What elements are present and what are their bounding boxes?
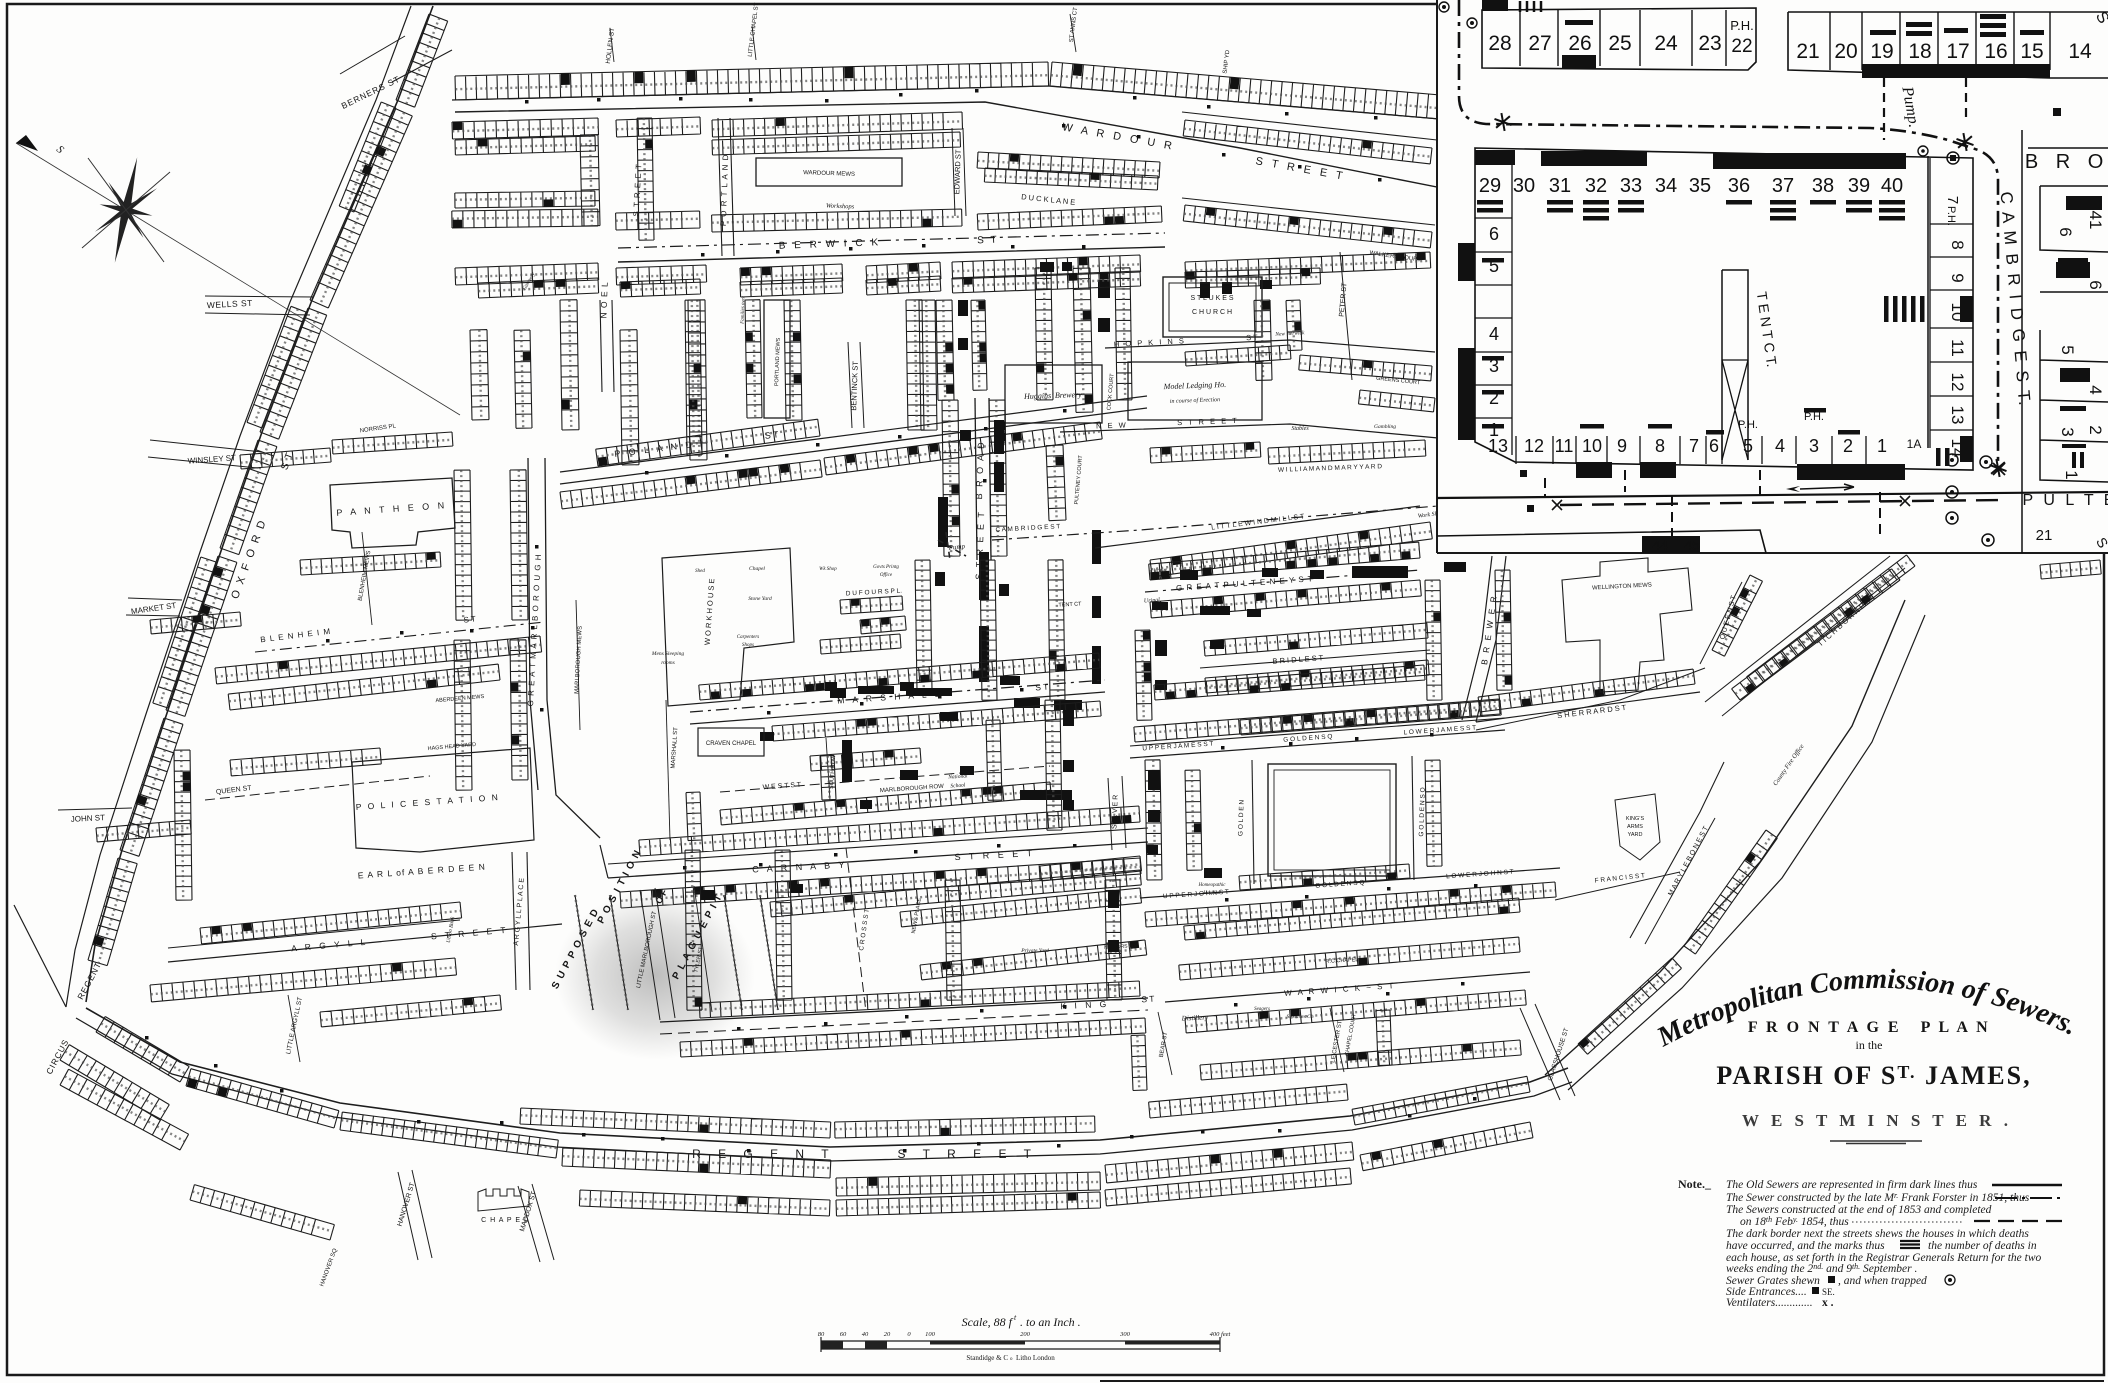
svg-text:x .: x . (1822, 1297, 1834, 1309)
svg-text:Stone Yard: Stone Yard (748, 596, 772, 602)
svg-text:JOHN ST: JOHN ST (71, 813, 106, 824)
svg-text:40: 40 (1881, 175, 1903, 197)
svg-text:23: 23 (1698, 32, 1721, 55)
svg-text:34: 34 (1655, 175, 1677, 197)
svg-text:CRAVEN CHAPEL: CRAVEN CHAPEL (706, 741, 757, 747)
svg-text:9: 9 (1948, 273, 1967, 282)
svg-text:Litho London: Litho London (1016, 1354, 1055, 1362)
svg-text:B R O A: B R O A (2025, 151, 2108, 173)
svg-text:in the: in the (1856, 1038, 1883, 1052)
svg-text:1: 1 (2062, 470, 2081, 479)
svg-text:18: 18 (1908, 40, 1931, 63)
svg-text:P.H.: P.H. (1804, 411, 1824, 423)
svg-text:13: 13 (1488, 436, 1508, 456)
svg-text:33: 33 (1620, 175, 1642, 197)
svg-text:17: 17 (1946, 40, 1969, 63)
svg-text:the number of deaths in: the number of deaths in (1928, 1240, 2037, 1252)
svg-text:400 feet: 400 feet (1210, 1331, 1231, 1338)
svg-text:41: 41 (2086, 211, 2105, 230)
svg-text:25: 25 (1608, 32, 1631, 55)
svg-text:F R O N T A G E P L A N: F R O N T A G E P L A N (1748, 1019, 1990, 1036)
svg-text:KING’S: KING’S (1626, 816, 1645, 822)
svg-text:The Old Sewers are represented: The Old Sewers are represented in firm d… (1726, 1179, 1978, 1191)
svg-text:39: 39 (1848, 175, 1870, 197)
svg-text:PARISH OF ST. JAMES,: PARISH OF ST. JAMES, (1716, 1061, 2031, 1090)
svg-text:24: 24 (1654, 32, 1678, 55)
svg-text:60: 60 (840, 1331, 847, 1338)
svg-text:6: 6 (1709, 436, 1719, 456)
svg-text:29: 29 (1479, 175, 1501, 197)
svg-text:YARD: YARD (1628, 832, 1643, 838)
svg-text:100: 100 (925, 1331, 936, 1338)
svg-text:N O E L: N O E L (598, 281, 609, 319)
svg-text:4: 4 (1489, 324, 1499, 344)
svg-text:C H U R C H: C H U R C H (1192, 309, 1232, 316)
svg-text:School: School (950, 782, 966, 789)
svg-text:S T: S T (1246, 333, 1258, 343)
svg-text:Urinal: Urinal (1153, 569, 1167, 574)
svg-text:Scale, 88 f: Scale, 88 f (962, 1315, 1014, 1329)
svg-text:27: 27 (1528, 32, 1551, 55)
svg-text:Chapel: Chapel (749, 566, 765, 572)
svg-text:36: 36 (1728, 175, 1750, 197)
svg-text:8: 8 (1655, 436, 1665, 456)
svg-text:G O L D E N: G O L D E N (1237, 799, 1245, 836)
svg-text:19: 19 (1870, 40, 1893, 63)
svg-text:40: 40 (862, 1331, 869, 1338)
svg-text:6: 6 (1489, 224, 1499, 244)
svg-text:11: 11 (1555, 436, 1574, 456)
svg-text:S I L V E R: S I L V E R (1111, 795, 1119, 830)
svg-text:S T: S T (1141, 994, 1155, 1005)
svg-text:20: 20 (884, 1331, 891, 1338)
svg-text:21: 21 (1796, 40, 1819, 63)
svg-text:6: 6 (2056, 227, 2075, 236)
svg-text:8: 8 (1948, 240, 1967, 249)
svg-text:13: 13 (1948, 406, 1967, 425)
svg-text:21: 21 (2036, 527, 2053, 544)
svg-text:. to an Inch .: . to an Inch . (1020, 1315, 1081, 1329)
svg-text:S T: S T (764, 429, 779, 441)
svg-text:11: 11 (1948, 339, 1967, 357)
svg-text:30: 30 (1513, 175, 1535, 197)
svg-text:31: 31 (1549, 175, 1571, 197)
svg-text:Hospital: Hospital (1202, 891, 1221, 896)
svg-text:12: 12 (1948, 373, 1967, 392)
svg-text:28: 28 (1488, 32, 1511, 55)
svg-text:BENTINCK ST: BENTINCK ST (849, 361, 860, 411)
svg-text:B R O A D: B R O A D (974, 440, 986, 499)
svg-text:SE.: SE. (1822, 1287, 1835, 1297)
svg-text:Standidge & C: Standidge & C (966, 1354, 1008, 1362)
svg-text:3: 3 (2058, 427, 2077, 436)
svg-text:W E S T M I N S T E R .: W E S T M I N S T E R . (1742, 1111, 2012, 1130)
svg-text:7: 7 (1944, 196, 1961, 204)
svg-text:S T L U K E S: S T L U K E S (1190, 295, 1233, 302)
svg-text:S T: S T (1035, 682, 1049, 693)
svg-text:Shed: Shed (695, 569, 705, 574)
svg-text:Govts Printg: Govts Printg (873, 565, 899, 570)
svg-text:2: 2 (1843, 436, 1853, 456)
svg-text:9: 9 (1617, 436, 1627, 456)
svg-text:R E G E N T S T R E E T: R E G E N T S T R E E T (692, 1147, 1038, 1161)
svg-text:38: 38 (1812, 175, 1834, 197)
svg-text:300: 300 (1119, 1331, 1131, 1338)
svg-text:TENT CT: TENT CT (1058, 601, 1082, 608)
svg-text:Stables: Stables (1291, 426, 1309, 432)
svg-text:1A: 1A (1907, 437, 1922, 451)
svg-text:S T: S T (977, 235, 999, 247)
svg-text:Office: Office (880, 573, 893, 578)
svg-text:P.H.: P.H. (1730, 18, 1754, 33)
svg-text:45: 45 (1684, 537, 1700, 553)
svg-text:Carpenters: Carpenters (737, 635, 760, 640)
svg-text:Ventilaters.............: Ventilaters............. (1726, 1297, 1813, 1309)
svg-text:P U L T E: P U L T E (2023, 492, 2108, 509)
svg-text:200: 200 (1020, 1331, 1031, 1338)
svg-text:20: 20 (1834, 40, 1857, 63)
svg-text:EDWARD ST: EDWARD ST (952, 149, 963, 194)
svg-text:Wk Shop: Wk Shop (819, 567, 837, 572)
svg-text:12: 12 (1524, 436, 1544, 456)
svg-text:Homeopathic: Homeopathic (1198, 883, 1227, 888)
svg-text:Gambling: Gambling (1374, 424, 1396, 430)
svg-text:5: 5 (2058, 345, 2077, 354)
svg-text:37: 37 (1772, 175, 1794, 197)
svg-text:Shops: Shops (742, 643, 754, 648)
svg-text:Note._: Note._ (1678, 1177, 1712, 1191)
svg-text:1: 1 (1877, 436, 1887, 456)
svg-text:7: 7 (1689, 436, 1699, 456)
svg-text:, and when trapped: , and when trapped (1838, 1275, 1927, 1287)
svg-text:Mens Sleeping: Mens Sleeping (651, 651, 684, 657)
svg-text:10: 10 (1582, 436, 1602, 456)
svg-text:3: 3 (1809, 436, 1819, 456)
svg-text:80: 80 (818, 1331, 825, 1338)
svg-text:4: 4 (2086, 385, 2105, 394)
svg-text:P.H.: P.H. (1945, 206, 1957, 226)
svg-text:rooms: rooms (661, 660, 675, 666)
svg-text:16: 16 (1984, 40, 2007, 63)
svg-text:35: 35 (1689, 175, 1711, 197)
svg-text:Workshops: Workshops (826, 203, 855, 211)
svg-text:The dark border next the stree: The dark border next the streets shews t… (1726, 1228, 2029, 1240)
svg-text:have occurred, and the marks t: have occurred, and the marks thus (1726, 1240, 1885, 1252)
svg-text:4: 4 (1775, 436, 1785, 456)
svg-text:ARMS: ARMS (1627, 824, 1643, 830)
svg-text:44: 44 (1652, 537, 1668, 553)
svg-text:2: 2 (2086, 425, 2105, 434)
svg-text:14: 14 (2068, 40, 2092, 63)
svg-text:The Sewer constructed by the l: The Sewer constructed by the late Mr. Fr… (1726, 1191, 2030, 1204)
svg-text:15: 15 (2020, 40, 2043, 63)
svg-text:22: 22 (1731, 36, 1752, 57)
svg-text:32: 32 (1585, 175, 1607, 197)
svg-text:6: 6 (2086, 280, 2105, 289)
svg-text:26: 26 (1568, 32, 1591, 55)
svg-text:Private Yard: Private Yard (1020, 948, 1049, 954)
